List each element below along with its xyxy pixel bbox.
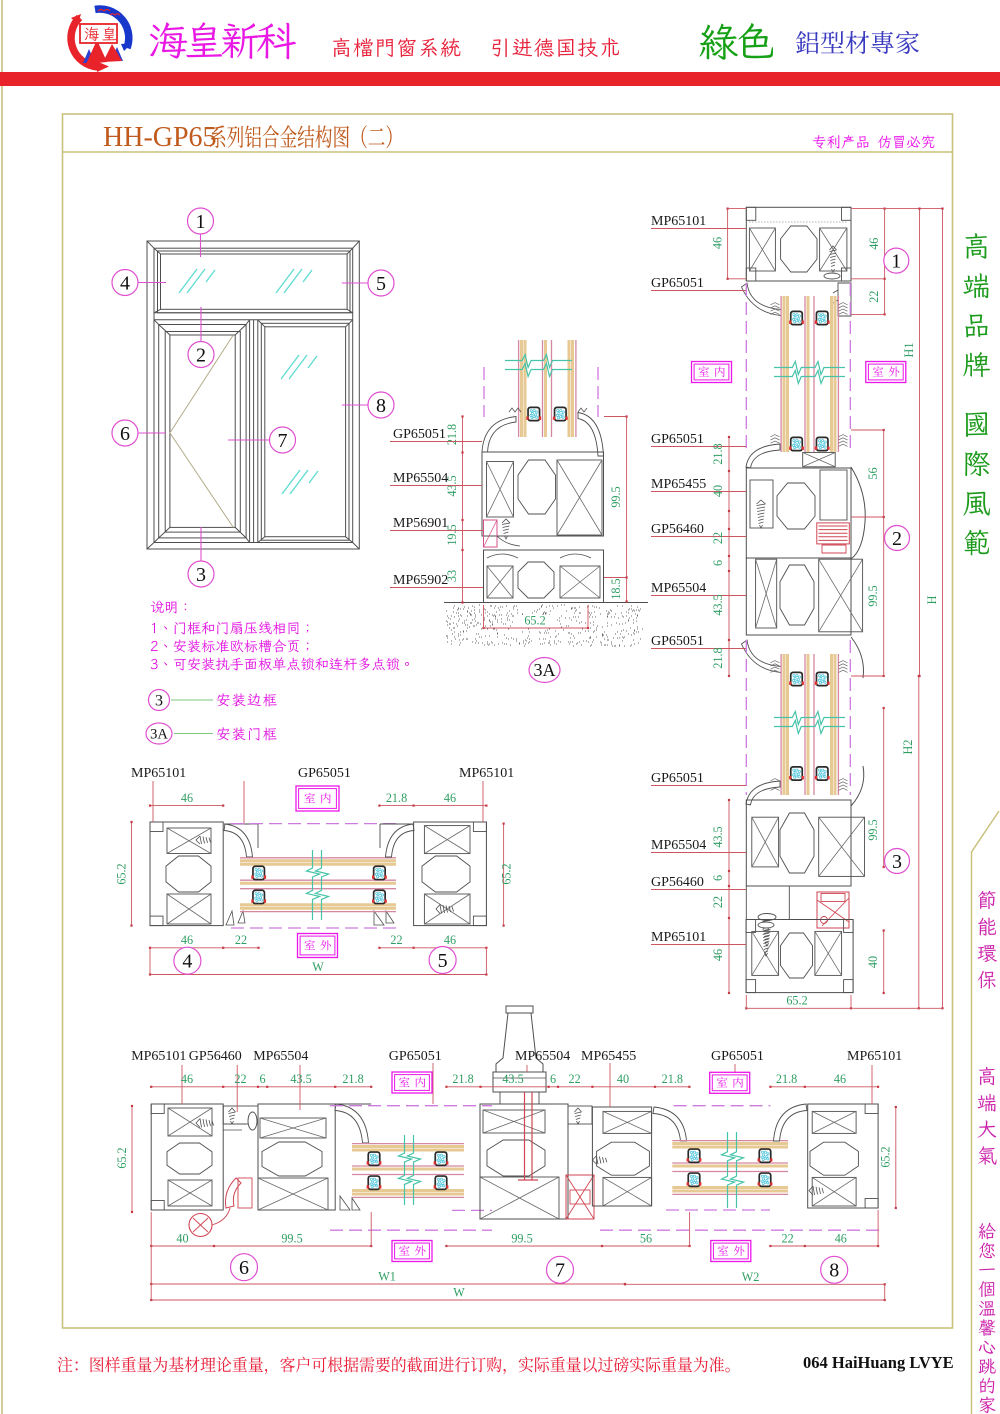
svg-text:43.5: 43.5 [502, 1072, 523, 1086]
svg-text:22: 22 [569, 1072, 581, 1086]
svg-text:6: 6 [711, 560, 725, 566]
svg-text:21.8: 21.8 [452, 1072, 473, 1086]
svg-text:22: 22 [867, 291, 881, 303]
svg-text:22: 22 [782, 1232, 794, 1246]
svg-text:MP65455: MP65455 [651, 477, 706, 492]
svg-text:46: 46 [867, 238, 881, 250]
svg-text:MP56901: MP56901 [393, 516, 448, 531]
svg-text:GP65051: GP65051 [651, 432, 704, 447]
svg-text:8: 8 [829, 1260, 839, 1282]
svg-text:22: 22 [711, 532, 725, 544]
svg-text:21.8: 21.8 [711, 647, 725, 668]
svg-text:43.5: 43.5 [290, 1072, 311, 1086]
svg-text:MP65504: MP65504 [393, 471, 448, 486]
svg-text:W1: W1 [378, 1270, 396, 1284]
svg-text:46: 46 [711, 949, 725, 961]
svg-text:MP65504: MP65504 [253, 1049, 308, 1064]
svg-text:MP65504: MP65504 [515, 1049, 570, 1064]
svg-text:GP65051: GP65051 [389, 1049, 442, 1064]
svg-text:8: 8 [376, 395, 386, 417]
svg-text:7: 7 [555, 1260, 565, 1282]
svg-text:65.2: 65.2 [115, 1147, 129, 1168]
svg-text:99.5: 99.5 [866, 819, 880, 840]
svg-text:6: 6 [259, 1072, 265, 1086]
svg-text:22: 22 [711, 896, 725, 908]
svg-text:W: W [453, 1286, 465, 1300]
svg-text:40: 40 [176, 1232, 188, 1246]
svg-text:46: 46 [444, 791, 456, 805]
svg-text:GP56460: GP56460 [189, 1049, 242, 1064]
svg-text:3: 3 [155, 692, 163, 709]
svg-text:56: 56 [866, 467, 880, 479]
svg-text:7: 7 [278, 430, 288, 452]
svg-text:21.8: 21.8 [711, 443, 725, 464]
svg-text:MP65101: MP65101 [131, 766, 186, 781]
svg-text:99.5: 99.5 [511, 1232, 532, 1246]
svg-text:4: 4 [120, 272, 130, 294]
svg-text:5: 5 [376, 273, 386, 295]
svg-text:40: 40 [711, 485, 725, 497]
svg-text:H2: H2 [901, 740, 915, 755]
svg-text:46: 46 [711, 237, 725, 249]
svg-text:65.2: 65.2 [786, 994, 807, 1008]
svg-text:5: 5 [438, 950, 448, 972]
svg-text:W: W [312, 960, 324, 974]
svg-text:40: 40 [866, 956, 880, 968]
svg-text:064 HaiHuang LVYE: 064 HaiHuang LVYE [803, 1353, 954, 1372]
svg-text:MP65101: MP65101 [651, 214, 706, 229]
svg-text:21.8: 21.8 [342, 1072, 363, 1086]
svg-text:3: 3 [892, 851, 902, 873]
svg-text:65.2: 65.2 [524, 614, 545, 628]
svg-text:GP65051: GP65051 [393, 427, 446, 442]
svg-text:3A: 3A [150, 726, 168, 742]
svg-text:MP65101: MP65101 [459, 766, 514, 781]
svg-text:MP65902: MP65902 [393, 573, 448, 588]
svg-text:GP65051: GP65051 [651, 276, 704, 291]
svg-text:46: 46 [181, 791, 193, 805]
svg-text:6: 6 [120, 423, 130, 445]
svg-text:21.8: 21.8 [662, 1072, 683, 1086]
svg-text:GP65051: GP65051 [298, 766, 351, 781]
svg-text:4: 4 [182, 951, 192, 973]
svg-text:GP65051: GP65051 [711, 1049, 764, 1064]
svg-text:46: 46 [835, 1232, 847, 1246]
svg-text:GP65051: GP65051 [651, 771, 704, 786]
svg-text:46: 46 [834, 1072, 846, 1086]
svg-text:56: 56 [640, 1232, 652, 1246]
svg-text:18.5: 18.5 [609, 578, 623, 599]
svg-text:H1: H1 [902, 343, 916, 358]
svg-text:22: 22 [234, 1072, 246, 1086]
svg-text:22: 22 [390, 933, 402, 947]
svg-text:MP65101: MP65101 [847, 1049, 902, 1064]
svg-text:46: 46 [181, 1072, 193, 1086]
svg-text:2: 2 [196, 344, 206, 366]
svg-text:43.5: 43.5 [711, 594, 725, 615]
svg-text:65.2: 65.2 [879, 1146, 893, 1167]
svg-text:99.5: 99.5 [281, 1232, 302, 1246]
svg-text:99.5: 99.5 [866, 585, 880, 606]
svg-text:GP56460: GP56460 [651, 875, 704, 890]
svg-text:40: 40 [617, 1072, 629, 1086]
svg-text:H: H [925, 595, 939, 604]
svg-text:65.2: 65.2 [500, 863, 514, 884]
svg-text:MP65101: MP65101 [131, 1049, 186, 1064]
svg-text:W2: W2 [742, 1270, 760, 1284]
svg-text:99.5: 99.5 [609, 486, 623, 507]
svg-text:3A: 3A [534, 660, 556, 680]
svg-text:43.5: 43.5 [711, 826, 725, 847]
svg-text:1: 1 [891, 250, 901, 272]
svg-text:46: 46 [444, 933, 456, 947]
svg-text:21.8: 21.8 [386, 791, 407, 805]
svg-text:GP65051: GP65051 [651, 634, 704, 649]
svg-text:22: 22 [235, 933, 247, 947]
svg-text:GP56460: GP56460 [651, 522, 704, 537]
svg-text:2: 2 [892, 528, 902, 550]
svg-text:MP65504: MP65504 [651, 838, 706, 853]
svg-text:46: 46 [181, 933, 193, 947]
svg-text:1: 1 [196, 211, 206, 233]
svg-text:MP65101: MP65101 [651, 930, 706, 945]
svg-text:21.8: 21.8 [445, 424, 459, 445]
svg-text:21.8: 21.8 [776, 1072, 797, 1086]
svg-text:MP65455: MP65455 [581, 1049, 636, 1064]
svg-text:6: 6 [550, 1072, 556, 1086]
svg-text:65.2: 65.2 [115, 863, 129, 884]
svg-text:6: 6 [711, 875, 725, 881]
svg-text:3: 3 [196, 564, 206, 586]
svg-text:MP65504: MP65504 [651, 581, 706, 596]
svg-text:HH-GP65: HH-GP65 [103, 122, 217, 153]
svg-text:6: 6 [239, 1257, 249, 1279]
